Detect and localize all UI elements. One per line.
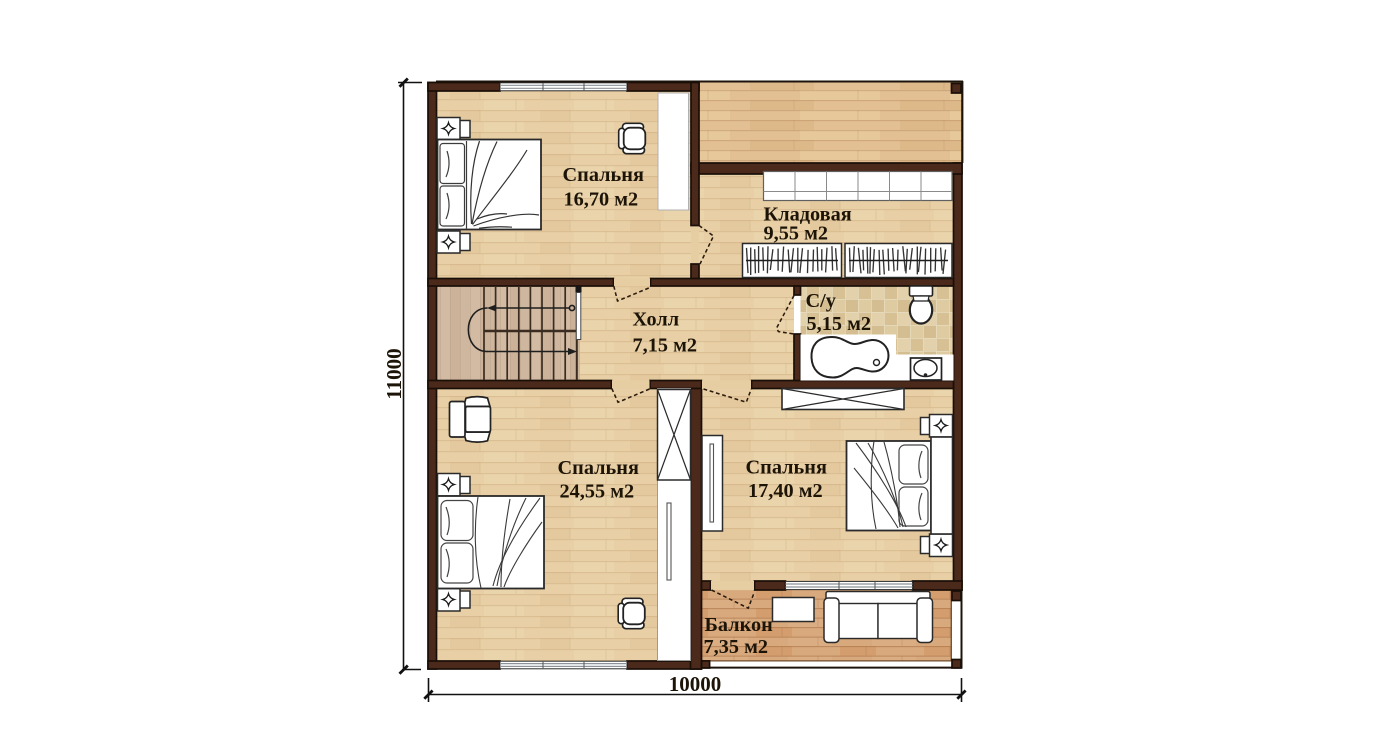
svg-text:Спальня: Спальня xyxy=(558,457,639,479)
svg-text:7,15 м2: 7,15 м2 xyxy=(633,335,698,357)
svg-text:С/у: С/у xyxy=(806,290,836,312)
svg-text:7,35 м2: 7,35 м2 xyxy=(704,636,769,658)
svg-text:5,15 м2: 5,15 м2 xyxy=(807,313,872,335)
svg-text:9,55 м2: 9,55 м2 xyxy=(764,223,829,245)
svg-text:Спальня: Спальня xyxy=(563,164,644,186)
svg-text:Спальня: Спальня xyxy=(746,457,827,479)
svg-text:16,70 м2: 16,70 м2 xyxy=(564,189,639,211)
svg-text:Холл: Холл xyxy=(633,309,680,331)
svg-text:Балкон: Балкон xyxy=(705,614,774,636)
svg-text:24,55 м2: 24,55 м2 xyxy=(560,481,635,503)
svg-text:10000: 10000 xyxy=(669,672,722,696)
svg-text:17,40 м2: 17,40 м2 xyxy=(748,480,823,502)
svg-text:11000: 11000 xyxy=(382,348,406,399)
